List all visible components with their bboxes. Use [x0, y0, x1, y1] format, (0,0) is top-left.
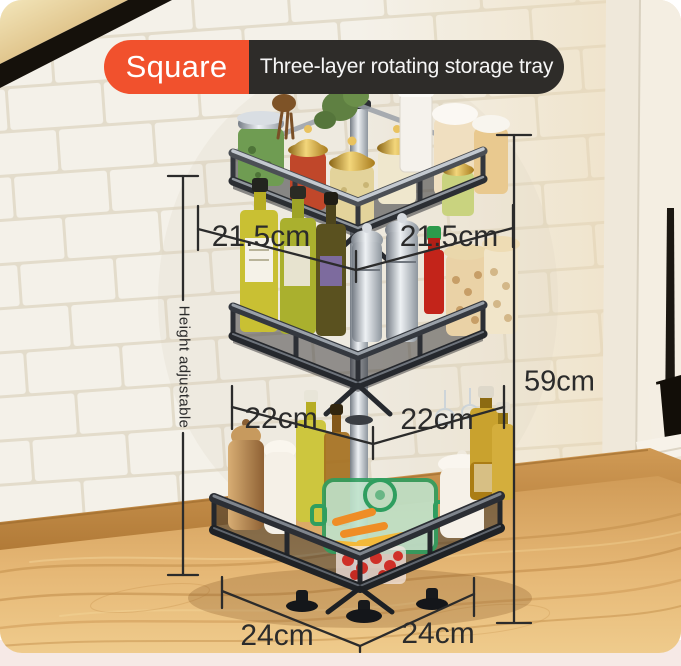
banner-title: Three-layer rotating storage tray — [249, 40, 564, 94]
height-adjustable-label: Height adjustable — [177, 306, 192, 429]
tall-white-canister — [398, 87, 434, 172]
tier2-right-dimension-label: 22cm — [400, 405, 473, 435]
tier2-left-dimension-label: 22cm — [244, 404, 317, 434]
banner-tag: Square — [104, 40, 249, 94]
tier1-left-dimension-label: 21.5cm — [212, 222, 310, 252]
product-image-canvas: Square Three-layer rotating storage tray… — [0, 0, 681, 666]
window-frame — [596, 0, 681, 498]
tier3-left-dimension-label: 24cm — [240, 621, 313, 651]
title-banner: Square Three-layer rotating storage tray — [104, 40, 564, 94]
total-height-label: 59cm — [524, 368, 595, 397]
tier3-right-dimension-label: 24cm — [401, 619, 474, 649]
tier1-right-dimension-label: 21.5cm — [400, 222, 498, 252]
kitchen-photo — [0, 0, 681, 653]
